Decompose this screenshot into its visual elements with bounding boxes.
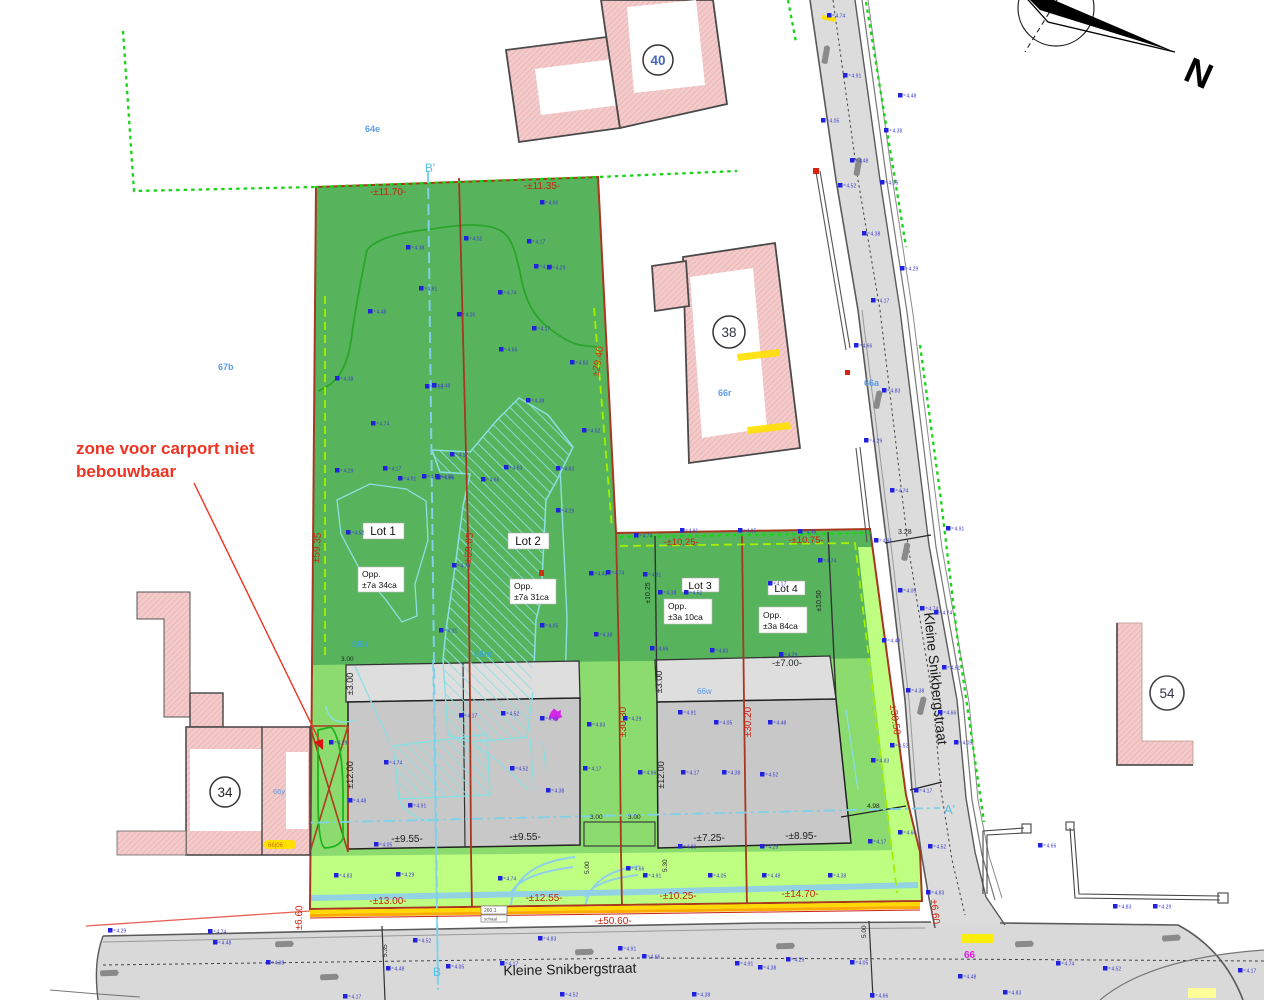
svg-text:A': A' (944, 802, 955, 817)
svg-text:4.66: 4.66 (549, 717, 559, 723)
svg-text:4.17: 4.17 (536, 240, 546, 246)
svg-text:4.29: 4.29 (117, 929, 127, 935)
svg-text:4.98: 4.98 (867, 803, 880, 810)
svg-text:4.48: 4.48 (907, 94, 917, 100)
svg-text:-±9.55-: -±9.55- (391, 834, 423, 845)
svg-text:4.29: 4.29 (1162, 905, 1172, 911)
svg-text:4.91: 4.91 (652, 573, 662, 579)
svg-text:4.48: 4.48 (377, 310, 387, 316)
svg-text:4.48: 4.48 (807, 530, 817, 536)
svg-text:Opp.: Opp. (763, 610, 781, 620)
svg-text:3.28: 3.28 (898, 529, 912, 536)
svg-text:4.05: 4.05 (889, 181, 899, 187)
svg-text:4.17: 4.17 (352, 995, 362, 1000)
svg-text:4.74: 4.74 (943, 611, 953, 617)
svg-text:4.17: 4.17 (592, 767, 602, 773)
svg-text:4.29: 4.29 (405, 873, 415, 879)
svg-text:4.17: 4.17 (509, 962, 519, 968)
svg-text:260.1: 260.1 (484, 908, 497, 914)
svg-text:4.52: 4.52 (1112, 967, 1122, 973)
svg-text:4.66: 4.66 (508, 348, 518, 354)
svg-text:4.29: 4.29 (431, 475, 441, 481)
svg-text:4.17: 4.17 (392, 467, 402, 473)
svg-text:5.30: 5.30 (662, 859, 669, 872)
svg-text:4.38: 4.38 (667, 591, 677, 597)
svg-text:5.35: 5.35 (382, 944, 389, 957)
svg-text:66|06: 66|06 (268, 843, 284, 849)
svg-text:38: 38 (721, 325, 736, 340)
svg-text:4.91: 4.91 (428, 287, 438, 293)
svg-text:4.91: 4.91 (744, 962, 754, 968)
svg-text:4.83: 4.83 (687, 845, 697, 851)
svg-text:-±9.55-: -±9.55- (509, 832, 541, 843)
svg-text:4.83: 4.83 (935, 891, 945, 897)
svg-text:4.38: 4.38 (555, 789, 565, 795)
svg-text:4.48: 4.48 (891, 639, 901, 645)
svg-text:Lot 1: Lot 1 (370, 526, 396, 538)
svg-text:4.38: 4.38 (871, 232, 881, 238)
svg-text:4.91: 4.91 (883, 539, 893, 545)
svg-text:4.38: 4.38 (535, 399, 545, 405)
svg-text:-±10.25-: -±10.25- (663, 537, 698, 548)
svg-text:66n: 66n (352, 639, 368, 649)
svg-text:-±12.55-: -±12.55- (525, 893, 562, 904)
svg-text:±30.30: ±30.30 (618, 706, 629, 737)
svg-text:±7a 34ca: ±7a 34ca (362, 580, 397, 590)
svg-text:4.66: 4.66 (879, 994, 889, 1000)
svg-text:4.66: 4.66 (651, 955, 661, 961)
svg-text:4.66: 4.66 (647, 771, 657, 777)
svg-text:4.83: 4.83 (565, 467, 575, 473)
svg-text:4.17: 4.17 (690, 771, 700, 777)
svg-text:B: B (433, 965, 441, 979)
svg-text:4.66: 4.66 (659, 647, 669, 653)
svg-text:4.52: 4.52 (899, 744, 909, 750)
svg-text:4.29: 4.29 (788, 653, 798, 659)
svg-text:4.91: 4.91 (407, 477, 417, 483)
svg-text:66: 66 (964, 950, 976, 961)
svg-text:4.05: 4.05 (907, 589, 917, 595)
svg-text:4.17: 4.17 (923, 789, 933, 795)
svg-text:-±14.70-: -±14.70- (781, 889, 818, 900)
svg-text:4.05: 4.05 (455, 965, 465, 971)
svg-text:66w: 66w (697, 687, 712, 696)
svg-text:4.29: 4.29 (556, 266, 566, 272)
svg-text:4.74: 4.74 (836, 14, 846, 20)
svg-text:4.83: 4.83 (1012, 991, 1022, 997)
svg-text:4.52: 4.52 (569, 993, 579, 999)
svg-text:4.91: 4.91 (951, 666, 961, 672)
svg-text:4.48: 4.48 (395, 967, 405, 973)
svg-text:4.17: 4.17 (880, 299, 890, 305)
svg-text:4.91: 4.91 (955, 527, 965, 533)
svg-text:4.52: 4.52 (473, 237, 483, 243)
svg-text:4.05: 4.05 (963, 741, 973, 747)
svg-text:±10.25: ±10.25 (645, 582, 652, 603)
svg-text:±3.00: ±3.00 (345, 673, 355, 695)
svg-text:4.38: 4.38 (767, 966, 777, 972)
svg-text:4.52: 4.52 (693, 591, 703, 597)
svg-text:4.52: 4.52 (519, 767, 529, 773)
svg-text:4.48: 4.48 (777, 721, 787, 727)
svg-text:4.05: 4.05 (723, 721, 733, 727)
svg-text:4.83: 4.83 (579, 361, 589, 367)
svg-text:4.91: 4.91 (652, 874, 662, 880)
svg-text:-±11.70-: -±11.70- (370, 187, 406, 198)
svg-text:5.00: 5.00 (584, 861, 591, 874)
svg-text:Lot 2: Lot 2 (515, 536, 541, 548)
svg-text:4.91: 4.91 (448, 629, 458, 635)
svg-text:4.66: 4.66 (907, 831, 917, 837)
svg-text:-±10.75-: -±10.75- (788, 535, 823, 546)
svg-text:4.29: 4.29 (769, 845, 779, 851)
svg-text:4.91: 4.91 (627, 947, 637, 953)
svg-text:±3a 84ca: ±3a 84ca (763, 621, 798, 631)
svg-text:4.74: 4.74 (393, 761, 403, 767)
svg-text:4.38: 4.38 (344, 377, 354, 383)
svg-text:-±10.25-: -±10.25- (659, 891, 696, 902)
svg-text:4.05: 4.05 (830, 119, 840, 125)
svg-text:4.48: 4.48 (357, 799, 367, 805)
svg-text:4.29: 4.29 (909, 267, 919, 273)
svg-text:4.66: 4.66 (1047, 844, 1057, 850)
svg-text:±12.00: ±12.00 (656, 761, 666, 788)
svg-text:4.83: 4.83 (547, 937, 557, 943)
svg-text:4.48: 4.48 (598, 572, 608, 578)
svg-text:4.48: 4.48 (859, 159, 869, 165)
svg-text:4.66: 4.66 (863, 344, 873, 350)
svg-text:5.00: 5.00 (861, 925, 868, 938)
svg-text:4.52: 4.52 (355, 531, 365, 537)
svg-text:4.66: 4.66 (635, 867, 645, 873)
svg-text:4.29: 4.29 (873, 439, 883, 445)
svg-text:4.48: 4.48 (771, 874, 781, 880)
svg-text:4.38: 4.38 (701, 993, 711, 999)
svg-text:4.29: 4.29 (632, 717, 642, 723)
svg-text:4.74: 4.74 (827, 559, 837, 565)
svg-text:±3a 10ca: ±3a 10ca (668, 612, 703, 622)
svg-text:±7a 31ca: ±7a 31ca (514, 592, 549, 602)
svg-text:4.48: 4.48 (441, 384, 451, 390)
svg-text:schaal: schaal (484, 917, 497, 922)
svg-text:64e: 64e (365, 124, 380, 134)
svg-text:zone voor carport niet: zone voor carport niet (76, 439, 255, 458)
svg-text:bebouwbaar: bebouwbaar (76, 462, 177, 481)
svg-text:4.38: 4.38 (275, 961, 285, 967)
svg-text:4.52: 4.52 (937, 845, 947, 851)
svg-text:4.05: 4.05 (717, 874, 727, 880)
svg-text:40: 40 (650, 53, 665, 68)
svg-text:Kleine Snikbergstraat: Kleine Snikbergstraat (503, 960, 636, 979)
svg-text:4.91: 4.91 (417, 804, 427, 810)
svg-text:4.52: 4.52 (422, 939, 432, 945)
svg-text:4.05: 4.05 (466, 313, 476, 319)
svg-text:3.00: 3.00 (341, 656, 354, 663)
svg-text:4.66: 4.66 (445, 476, 455, 482)
svg-text:66r: 66r (718, 388, 732, 398)
svg-text:4.74: 4.74 (380, 422, 390, 428)
svg-text:B': B' (425, 161, 435, 175)
svg-text:66m: 66m (474, 649, 492, 659)
svg-text:4.29: 4.29 (344, 469, 354, 475)
svg-text:4.48: 4.48 (222, 941, 232, 947)
svg-text:4.05: 4.05 (747, 529, 757, 535)
svg-text:4.83: 4.83 (1122, 905, 1132, 911)
svg-text:4.74: 4.74 (899, 489, 909, 495)
svg-text:4.52: 4.52 (769, 773, 779, 779)
svg-text:Opp.: Opp. (668, 601, 686, 611)
svg-text:Opp.: Opp. (362, 569, 380, 579)
svg-text:4.91: 4.91 (689, 529, 699, 535)
svg-text:67b: 67b (218, 362, 234, 372)
svg-text:-±7.00-: -±7.00- (772, 658, 802, 669)
svg-text:4.38: 4.38 (837, 874, 847, 880)
svg-text:4.17: 4.17 (459, 453, 469, 459)
svg-text:4.17: 4.17 (541, 327, 551, 333)
svg-text:4.74: 4.74 (461, 564, 471, 570)
svg-text:66y: 66y (273, 787, 285, 796)
svg-text:4.29: 4.29 (565, 509, 575, 515)
svg-text:4.38: 4.38 (415, 246, 425, 252)
svg-text:4.83: 4.83 (513, 466, 523, 472)
svg-text:±3.00: ±3.00 (654, 671, 664, 693)
svg-text:4.17: 4.17 (468, 714, 478, 720)
svg-text:4.74: 4.74 (643, 534, 653, 540)
svg-text:4.66: 4.66 (490, 478, 500, 484)
svg-text:4.83: 4.83 (596, 723, 606, 729)
svg-text:-±50.60-: -±50.60- (594, 916, 631, 927)
svg-text:34: 34 (217, 785, 233, 800)
svg-text:4.74: 4.74 (507, 291, 517, 297)
svg-text:4.83: 4.83 (343, 874, 353, 880)
svg-text:4.38: 4.38 (915, 689, 925, 695)
svg-text:4.66: 4.66 (549, 201, 559, 207)
svg-text:4.17: 4.17 (777, 582, 787, 588)
svg-text:4.29: 4.29 (338, 741, 348, 747)
svg-text:4.66: 4.66 (947, 711, 957, 717)
svg-text:±10.50: ±10.50 (816, 590, 823, 611)
svg-text:4.38: 4.38 (731, 771, 741, 777)
svg-text:66a: 66a (864, 378, 880, 388)
svg-text:4.83: 4.83 (719, 649, 729, 655)
svg-text:4.52: 4.52 (510, 712, 520, 718)
svg-text:4.91: 4.91 (852, 74, 862, 80)
svg-text:4.74: 4.74 (507, 877, 517, 883)
svg-text:3.00: 3.00 (628, 814, 641, 821)
svg-text:4.83: 4.83 (880, 759, 890, 765)
svg-text:Opp.: Opp. (514, 581, 532, 591)
svg-text:-±13.00-: -±13.00- (369, 896, 406, 907)
svg-text:-±11.35-: -±11.35- (524, 181, 560, 192)
svg-text:4.52: 4.52 (847, 184, 857, 190)
svg-text:4.05: 4.05 (549, 624, 559, 630)
svg-text:±6.60: ±6.60 (294, 905, 306, 931)
svg-text:4.17: 4.17 (1247, 969, 1257, 975)
svg-text:4.05: 4.05 (383, 843, 393, 849)
svg-text:4.38: 4.38 (893, 129, 903, 135)
svg-text:±59.35: ±59.35 (311, 532, 324, 564)
svg-text:±12.00: ±12.00 (345, 761, 355, 788)
svg-text:4.91: 4.91 (687, 711, 697, 717)
svg-text:4.74: 4.74 (929, 607, 939, 613)
svg-text:4.74: 4.74 (217, 930, 227, 936)
svg-text:3.00: 3.00 (590, 814, 603, 821)
svg-text:4.29: 4.29 (795, 958, 805, 964)
svg-text:4.17: 4.17 (877, 840, 887, 846)
svg-text:54: 54 (1159, 686, 1175, 701)
svg-text:±30.20: ±30.20 (743, 706, 754, 737)
svg-text:4.74: 4.74 (1065, 962, 1075, 968)
svg-text:4.38: 4.38 (603, 633, 613, 639)
svg-text:-±7.25-: -±7.25- (693, 833, 725, 844)
svg-text:4.52: 4.52 (591, 429, 601, 435)
svg-text:4.48: 4.48 (967, 975, 977, 981)
svg-text:±59.65: ±59.65 (463, 532, 476, 564)
svg-text:-±8.95-: -±8.95- (785, 831, 817, 842)
svg-text:4.05: 4.05 (859, 961, 869, 967)
svg-text:4.74: 4.74 (615, 571, 625, 577)
svg-text:4.83: 4.83 (891, 389, 901, 395)
